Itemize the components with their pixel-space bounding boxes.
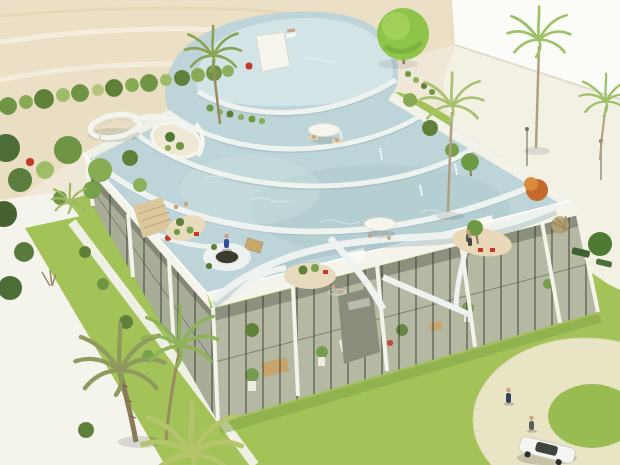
scene-svg <box>0 0 620 465</box>
umbrella-1 <box>308 124 342 145</box>
spa-plant <box>206 263 212 269</box>
red-flower-bush <box>26 158 34 166</box>
person <box>312 135 316 139</box>
bush <box>78 422 94 438</box>
rendering-canvas <box>0 0 620 465</box>
courtyard-plant <box>176 142 184 150</box>
island-tree <box>467 220 483 236</box>
red-chair <box>490 248 495 252</box>
person-sidewalk <box>468 234 472 246</box>
red-planter <box>246 63 253 70</box>
red-chair <box>194 232 199 236</box>
red-chair <box>478 248 483 252</box>
red-chair <box>323 270 328 274</box>
small-tree <box>461 153 479 171</box>
sand-island-2 <box>284 263 336 289</box>
courtyard-plant <box>165 132 175 142</box>
umbrella-2 <box>364 218 396 241</box>
person <box>387 236 391 240</box>
person <box>368 234 372 238</box>
stair-tower <box>256 32 290 72</box>
green-tree <box>588 232 612 256</box>
spa-plant <box>211 244 217 250</box>
courtyard-plant <box>165 145 171 151</box>
person <box>335 138 339 142</box>
